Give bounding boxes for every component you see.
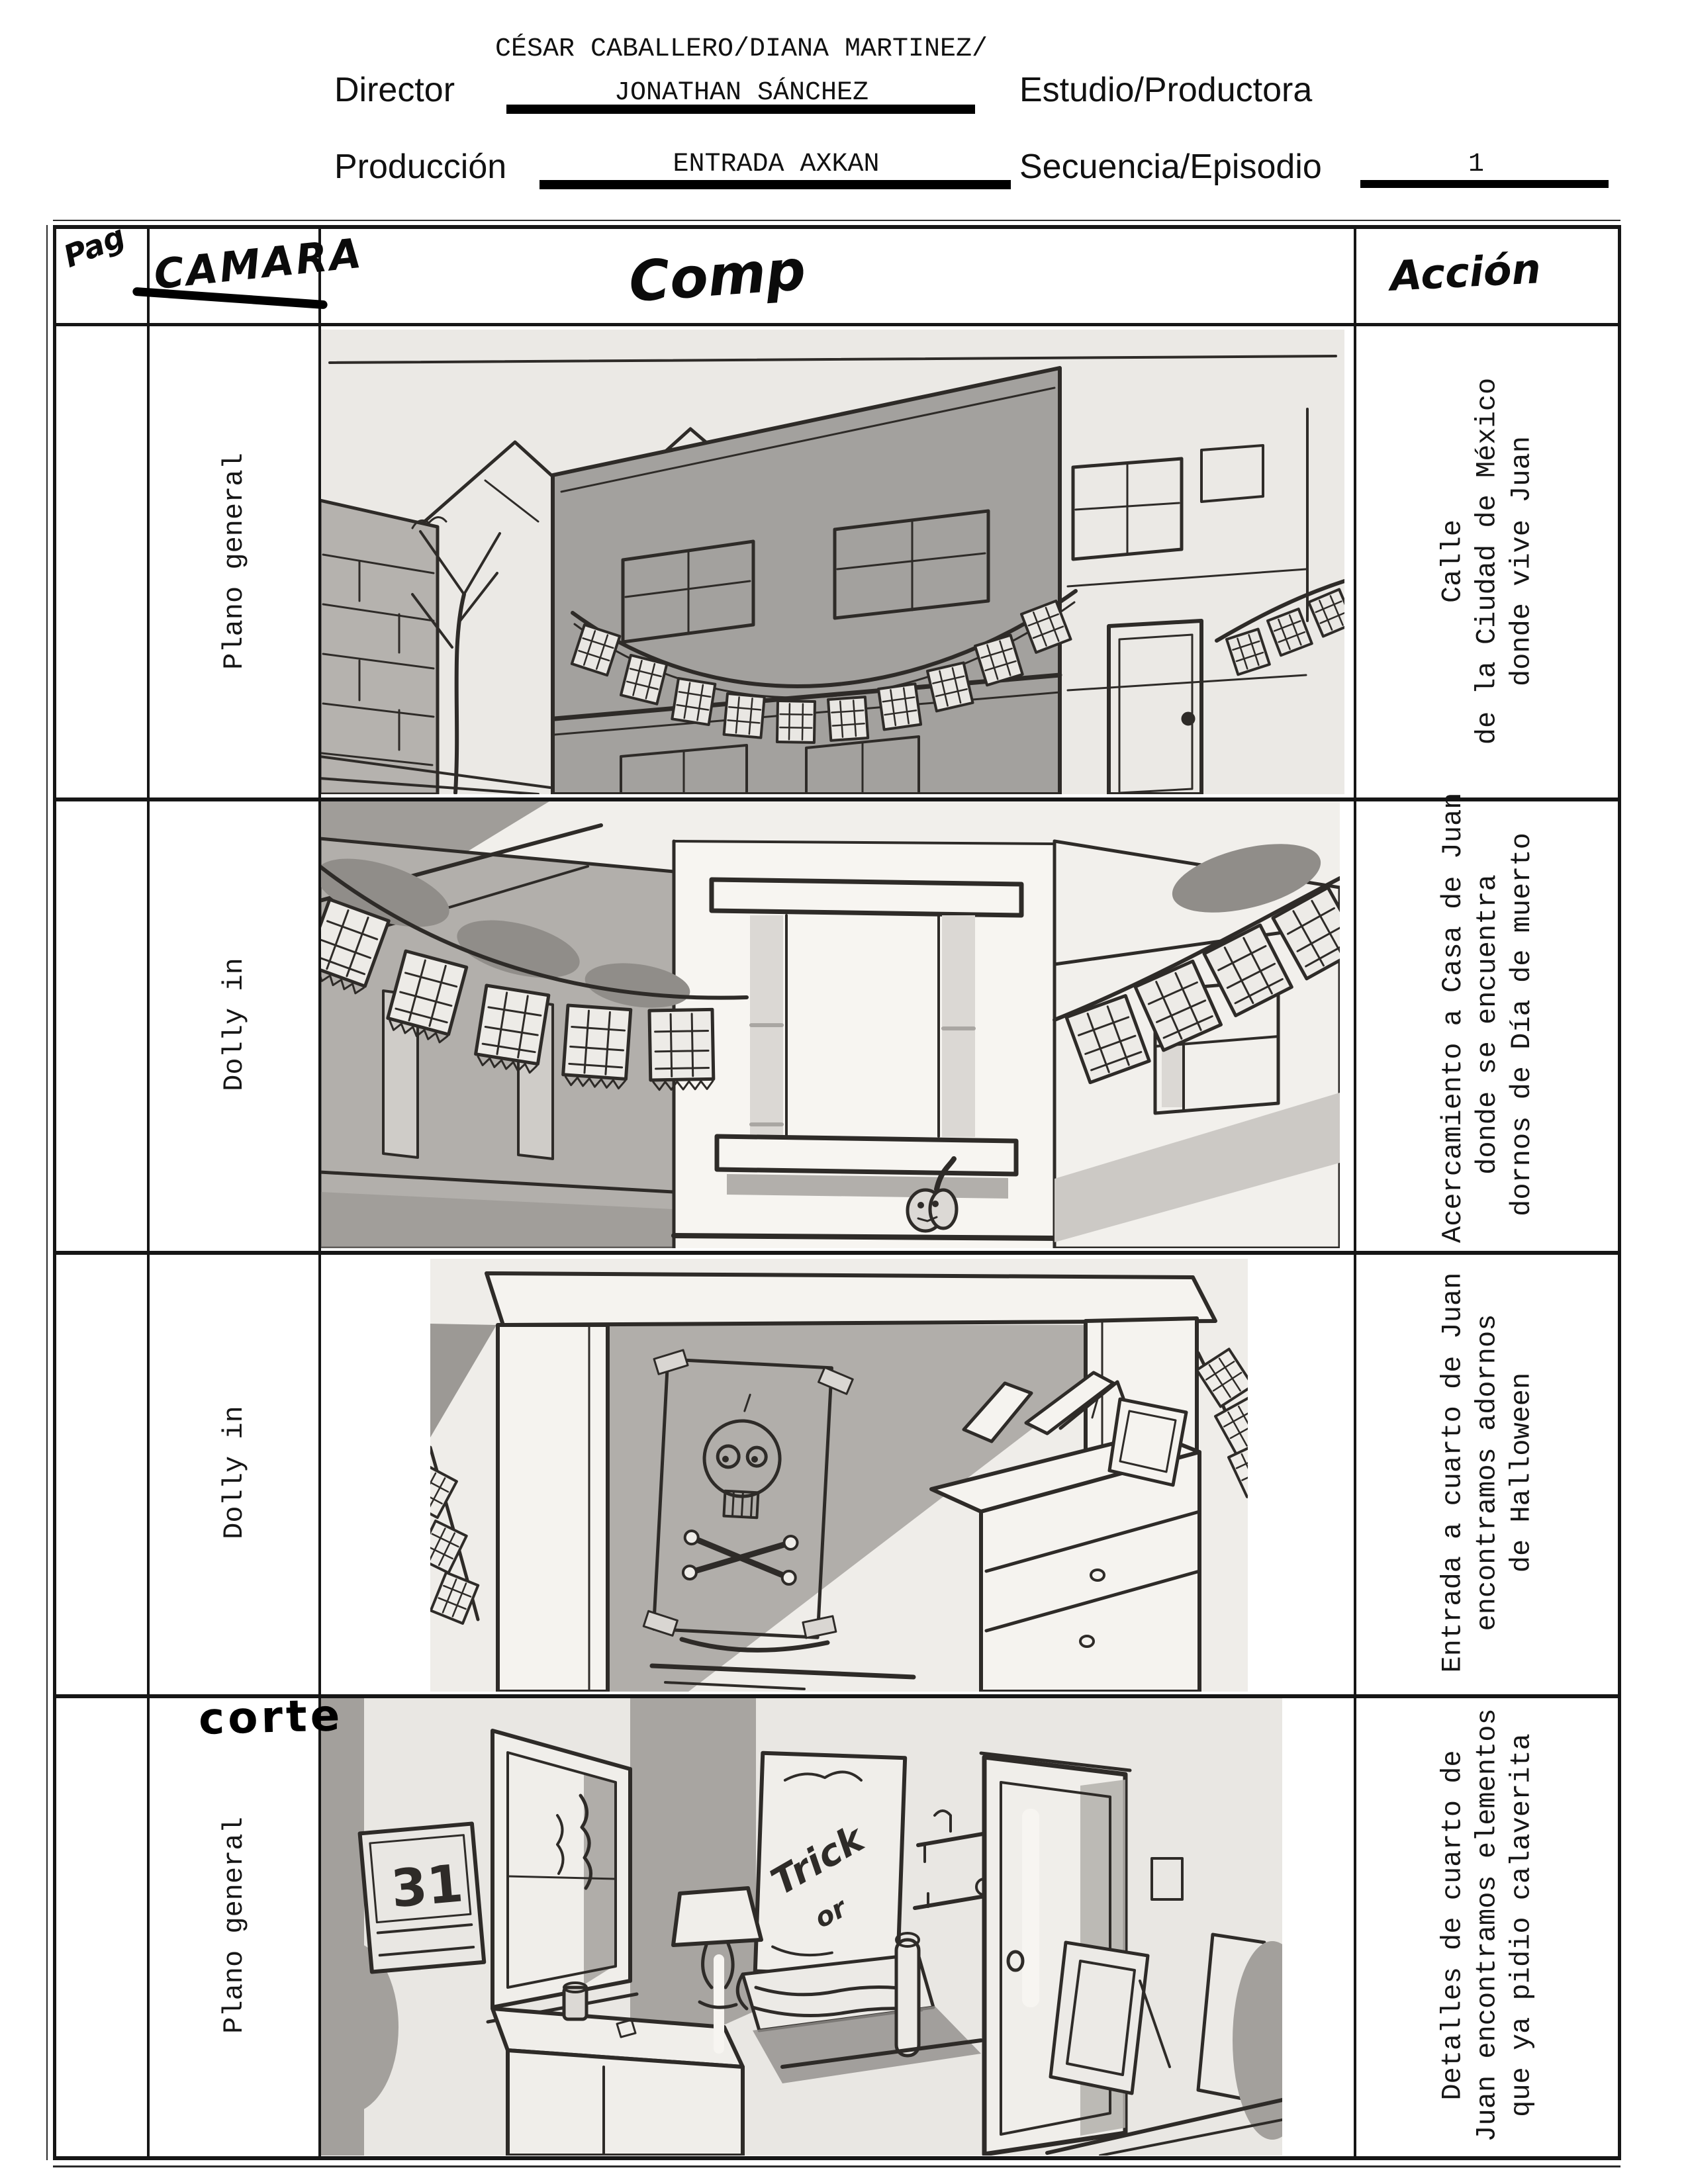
produccion-value: ENTRADA AXKAN: [539, 150, 1013, 179]
row3-action-cell: Entrada a cuarto de Juan encontramos ado…: [1356, 1251, 1618, 1694]
estudio-label: Estudio/Productora: [1019, 70, 1312, 110]
action-column-header: Acción: [1389, 244, 1542, 300]
storyboard-page: CÉSAR CABALLERO/DIANA MARTINEZ/ Director…: [0, 0, 1688, 2184]
row1-camera-cell: Plano general: [150, 324, 318, 797]
row2-action-text: Acercamiento a Casa de Juan donde se enc…: [1436, 806, 1539, 1243]
row1-action-cell: Calle de la Ciudad de México donde vive …: [1356, 324, 1618, 797]
row3-action-text: Entrada a cuarto de Juan encontramos ado…: [1436, 1273, 1539, 1673]
calendar-number: 31: [389, 1854, 465, 1919]
director-underline: [506, 105, 975, 114]
row1-sketch-street-exterior: [320, 330, 1344, 794]
table-left-accent-line: [46, 225, 48, 2160]
row3-camera-cell: Dolly in: [150, 1251, 318, 1694]
secuencia-underline: [1360, 180, 1609, 188]
row4-action-cell: Detalles de cuarto de Juan encontramos e…: [1356, 1694, 1618, 2156]
table-bottom-border: [53, 2156, 1620, 2160]
row2-sketch-house-corner: [320, 800, 1340, 1248]
row2-camera-label: Dolly in: [218, 958, 250, 1091]
director-label: Director: [334, 70, 455, 110]
camera-column-divider: [318, 225, 321, 2160]
table-right-border: [1618, 225, 1621, 2160]
row3-camera-label: Dolly in: [218, 1406, 250, 1539]
secuencia-label: Secuencia/Episodio: [1019, 147, 1322, 187]
produccion-label: Producción: [334, 147, 506, 187]
director-value-line2: JONATHAN SÁNCHEZ: [506, 78, 976, 108]
produccion-underline: [539, 180, 1011, 189]
row1-camera-label: Plano general: [218, 453, 250, 670]
table-bottom-accent-line: [53, 2165, 1620, 2167]
row1-action-text: Calle de la Ciudad de México donde vive …: [1436, 377, 1539, 745]
row2-action-cell: Acercamiento a Casa de Juan donde se enc…: [1356, 797, 1618, 1251]
table-left-border: [53, 225, 56, 2160]
camera-column-header: CAMARA: [152, 229, 365, 299]
row4-camera-cell: Plano general: [150, 1694, 318, 2156]
row3-sketch-room-entrance: [430, 1259, 1248, 1692]
table-top-border: [53, 225, 1620, 229]
director-value-line1: CÉSAR CABALLERO/DIANA MARTINEZ/: [483, 34, 1000, 64]
row4-action-text: Detalles de cuarto de Juan encontramos e…: [1436, 1708, 1539, 2142]
comp-column-header: Comp: [627, 238, 808, 314]
table-top-accent-line: [53, 220, 1620, 221]
row4-camera-label: Plano general: [218, 1817, 250, 2034]
corte-annotation: corte: [198, 1690, 344, 1745]
secuencia-value: 1: [1364, 150, 1589, 179]
row4-sketch-room-interior: 31 Trick or: [319, 1696, 1282, 2156]
row2-camera-cell: Dolly in: [150, 797, 318, 1251]
